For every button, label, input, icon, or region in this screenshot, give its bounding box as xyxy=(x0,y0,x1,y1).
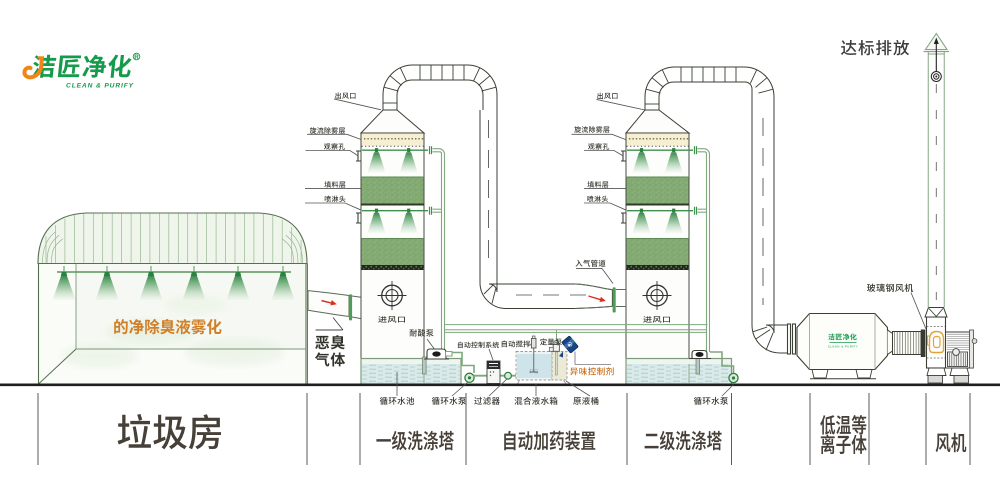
svg-text:CLEAN & PURIFY: CLEAN & PURIFY xyxy=(66,83,134,90)
svg-text:CLEAN & PURIFY: CLEAN & PURIFY xyxy=(828,345,858,349)
svg-text:R: R xyxy=(134,54,139,61)
